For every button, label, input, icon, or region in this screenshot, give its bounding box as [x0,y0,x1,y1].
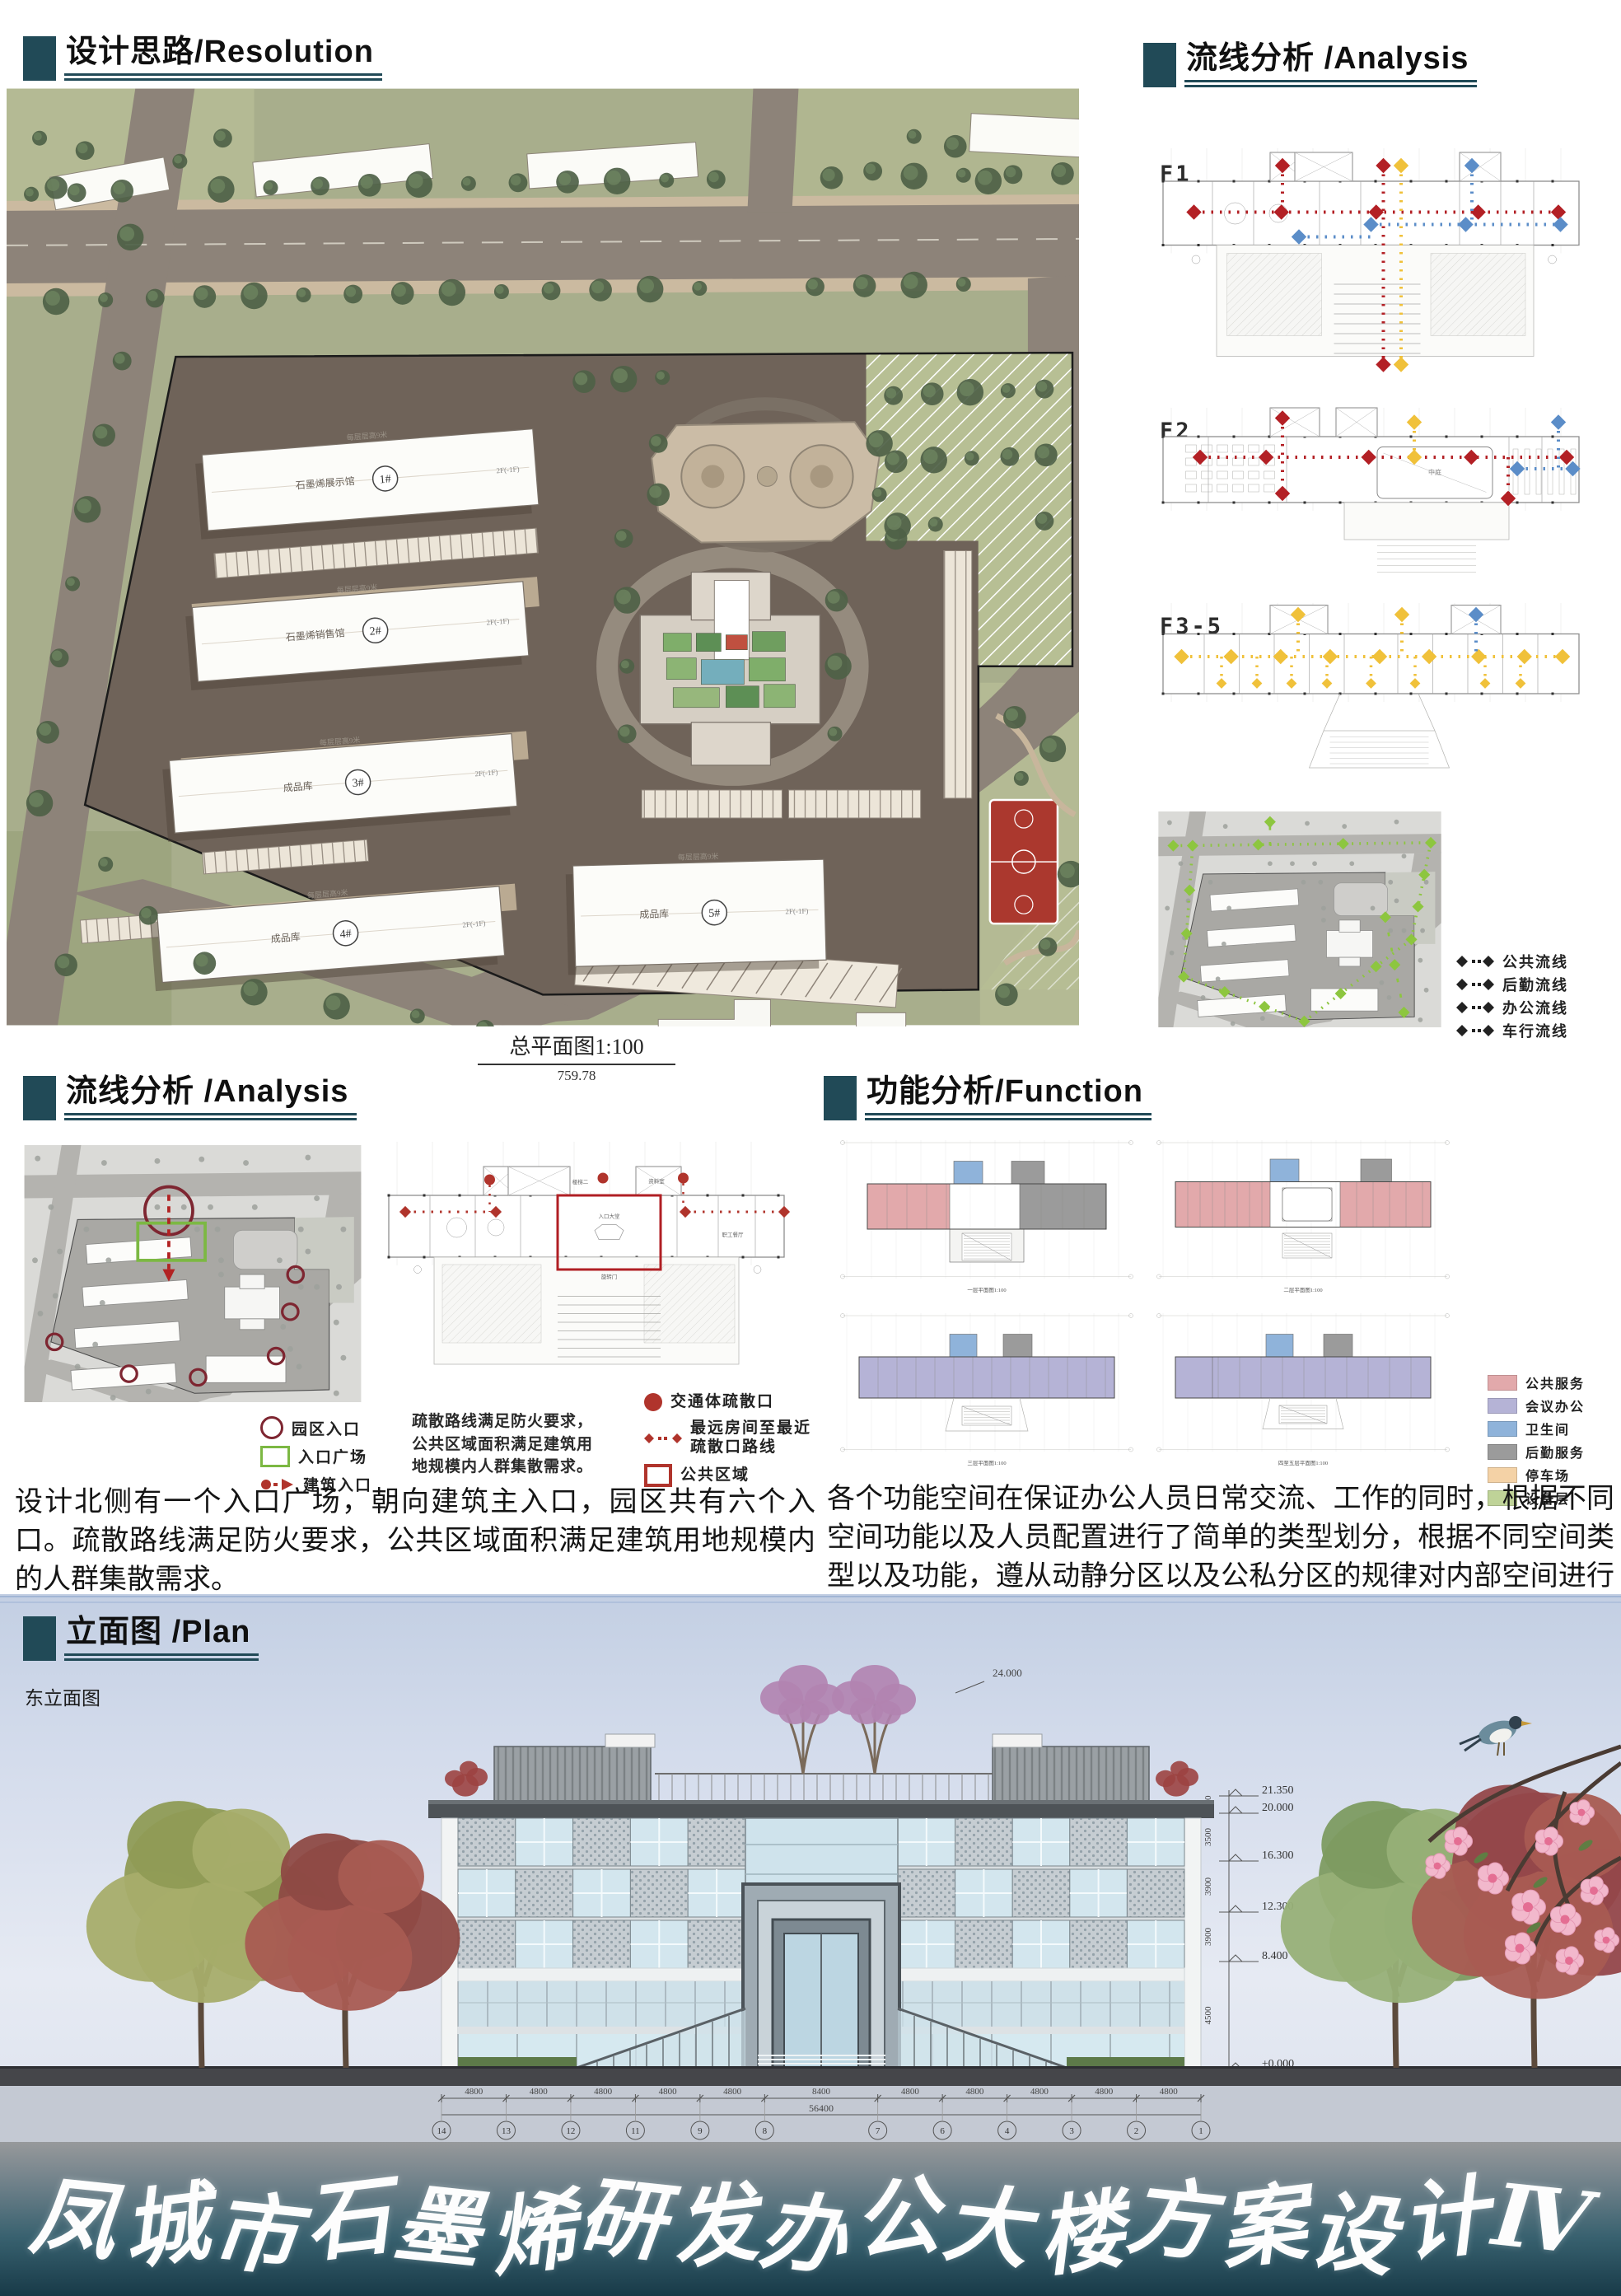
svg-text:4: 4 [1005,2126,1010,2136]
legend-label: 最远房间至最近 疏散口路线 [690,1419,826,1457]
title-char: 市 [206,2160,304,2293]
legend-label: 后勤服务 [1525,1442,1585,1461]
master-site-plan: 1#石墨烯展示馆2F(-1F)每层层高9米2#石墨烯销售馆2F(-1F)每层层高… [7,87,1079,1026]
svg-text:1: 1 [1198,2126,1203,2136]
flow-line-icon [1456,1002,1494,1013]
svg-text:8: 8 [763,2126,768,2136]
svg-text:9: 9 [698,2126,703,2136]
header-square-icon [23,36,56,81]
svg-text:13: 13 [502,2126,512,2136]
svg-text:1#: 1# [379,473,391,486]
function-plan-3: 三层平面图1:100 [830,1300,1143,1471]
svg-text:21.350: 21.350 [1262,1784,1294,1797]
svg-text:4800: 4800 [465,2087,483,2097]
svg-text:8.400: 8.400 [1262,1950,1288,1962]
header-square-icon [824,1076,857,1120]
legend-item: 公共服务 [1488,1372,1585,1392]
svg-text:4500: 4500 [1203,2006,1213,2025]
svg-text:成品库: 成品库 [639,907,669,920]
title-char: Ⅳ [1488,2163,1595,2275]
legend-item: 公共流线 [1456,951,1568,972]
section-title: 流线分析 /Analysis [64,1076,357,1120]
title-char: 楼 [1030,2159,1130,2294]
entrance-site-diagram [20,1145,366,1402]
legend-label: 公共流线 [1502,951,1568,972]
title-char: 案 [1212,2152,1312,2286]
function-color-swatch [1488,1444,1517,1460]
title-char: 大 [938,2153,1036,2285]
svg-text:5#: 5# [708,908,720,920]
svg-text:成品库: 成品库 [283,779,313,794]
svg-text:20.000: 20.000 [1262,1802,1294,1814]
circulation-site-diagram [1147,811,1453,1027]
header-square-icon [23,1076,56,1120]
circulation-plan-f3-5 [1147,595,1595,788]
evacuation-note: 疏散路线满足防火要求，公共区域面积满足建筑用地规模内人群集散需求。 [412,1410,597,1479]
circulation-plan-f2: 中庭 [1147,400,1595,585]
svg-text:3: 3 [1069,2126,1074,2136]
svg-text:3900: 3900 [1203,1928,1213,1947]
svg-text:4800: 4800 [1030,2087,1049,2097]
section-header-analysis-top: 流线分析 /Analysis [1143,43,1477,87]
svg-text:2#: 2# [369,625,381,638]
legend-item: 办公流线 [1456,997,1568,1018]
svg-text:4800: 4800 [594,2087,613,2097]
evacuation-legend: 交通体疏散口 最远房间至最近 疏散口路线 公共区域 [644,1386,826,1494]
svg-text:6: 6 [940,2126,945,2136]
legend-label: 会议办公 [1525,1396,1585,1415]
project-title-calligraphy: 凤城市石墨烯研发办公大楼方案设计Ⅳ [0,2142,1621,2296]
svg-text:楼梯二: 楼梯二 [572,1178,589,1185]
evacuation-legend-icon [644,1393,662,1411]
svg-text:4800: 4800 [723,2087,742,2097]
function-plan-1: 一层平面图1:100 [830,1130,1143,1295]
svg-text:2F(-1F): 2F(-1F) [785,907,808,916]
legend-label: 园区入口 [292,1417,361,1439]
function-color-swatch [1488,1421,1517,1437]
title-char: 凤 [25,2145,123,2278]
svg-text:4800: 4800 [1160,2087,1179,2097]
svg-text:16.300: 16.300 [1262,1849,1294,1862]
presentation-board: 设计思路/Resolution 流线分析 /Analysis 流线分析 /Ana… [0,0,1621,2296]
legend-item: 交通体疏散口 [644,1393,826,1412]
legend-label: 公共服务 [1525,1372,1585,1392]
section-title: 设计思路/Resolution [64,36,382,81]
section-header-function: 功能分析/Function [824,1076,1152,1120]
svg-text:四至五层平面图1:100: 四至五层平面图1:100 [1278,1460,1328,1466]
svg-text:成品库: 成品库 [270,930,301,945]
legend-label: 车行流线 [1502,1020,1568,1041]
svg-text:11: 11 [631,2126,640,2136]
title-char: 烯 [481,2159,582,2294]
title-char: 石 [297,2144,397,2279]
analysis-paragraph: 设计北侧有一个入口广场，朝向建筑主入口，园区共有六个入口。疏散路线满足防火要求，… [15,1483,815,1599]
function-color-swatch [1488,1398,1517,1414]
title-char: 发 [663,2152,764,2286]
title-char: 设 [1304,2160,1402,2293]
section-header-analysis-mid: 流线分析 /Analysis [23,1076,357,1120]
flow-line-icon [1456,956,1494,967]
circulation-plan-f1 [1147,140,1595,387]
svg-text:3900: 3900 [1203,1877,1213,1896]
flow-line-icon [1456,1025,1494,1036]
legend-item: 入口广场 [260,1445,372,1467]
svg-text:56400: 56400 [809,2102,834,2114]
title-char: 公 [845,2144,946,2279]
svg-text:3#: 3# [352,777,364,790]
entrance-legend-icon [260,1446,290,1467]
legend-label: 交通体疏散口 [670,1393,774,1412]
title-char: 办 [754,2160,853,2293]
legend-label: 后勤流线 [1502,974,1568,995]
legend-item: 后勤服务 [1488,1442,1585,1461]
title-char: 城 [114,2152,215,2286]
legend-label: 入口广场 [298,1445,367,1467]
legend-item: 最远房间至最近 疏散口路线 [644,1419,826,1457]
svg-text:中庭: 中庭 [1428,468,1441,476]
svg-text:12: 12 [566,2126,575,2136]
title-char: 研 [573,2145,671,2278]
section-header-resolution: 设计思路/Resolution [23,36,382,81]
legend-item: 会议办公 [1488,1396,1585,1415]
svg-text:4800: 4800 [1095,2087,1114,2097]
title-char: 墨 [390,2153,488,2285]
svg-text:3500: 3500 [1203,1828,1213,1847]
legend-item: 车行流线 [1456,1020,1568,1041]
legend-label: 卫生间 [1525,1419,1570,1438]
entrance-legend-icon [260,1416,283,1439]
section-title: 流线分析 /Analysis [1184,43,1477,87]
circulation-legend: 公共流线 后勤流线 办公流线 [1456,949,1568,1043]
svg-text:7: 7 [876,2126,881,2136]
svg-text:4800: 4800 [965,2087,984,2097]
legend-label: 办公流线 [1502,997,1568,1018]
function-plan-2: 二层平面图1:100 [1147,1130,1460,1295]
legend-item: 后勤流线 [1456,974,1568,995]
flow-line-icon [1456,979,1494,990]
evacuation-legend-icon [644,1433,682,1444]
evacuation-floor-plan: 入口大堂职工餐厅资料室楼梯二旋转门 [372,1134,801,1381]
svg-text:一层平面图1:100: 一层平面图1:100 [967,1287,1006,1293]
svg-text:4#: 4# [339,928,352,941]
function-color-swatch [1488,1375,1517,1391]
legend-item: 园区入口 [260,1416,372,1439]
svg-text:8400: 8400 [812,2087,831,2097]
header-square-icon [1143,43,1176,87]
function-plan-4: 四至五层平面图1:100 [1147,1300,1460,1471]
section-title: 功能分析/Function [865,1076,1152,1120]
svg-text:每层层高9米: 每层层高9米 [678,851,719,861]
svg-text:三层平面图1:100: 三层平面图1:100 [967,1460,1006,1466]
svg-text:2: 2 [1134,2126,1139,2136]
svg-text:二层平面图1:100: 二层平面图1:100 [1283,1287,1322,1293]
title-char: 计 [1394,2144,1494,2279]
svg-text:4800: 4800 [901,2087,920,2097]
title-char: 方 [1122,2145,1220,2278]
site-plan-caption: 总平面图1:100 759.78 [346,1030,807,1084]
east-elevation-drawing: 21.35020.00016.30012.3008.400±0.000-1.50… [0,1594,1621,2142]
legend-item: 卫生间 [1488,1419,1585,1438]
svg-text:24.000: 24.000 [993,1667,1022,1679]
svg-text:4800: 4800 [659,2087,678,2097]
svg-text:4800: 4800 [530,2087,549,2097]
svg-text:14: 14 [437,2126,447,2136]
